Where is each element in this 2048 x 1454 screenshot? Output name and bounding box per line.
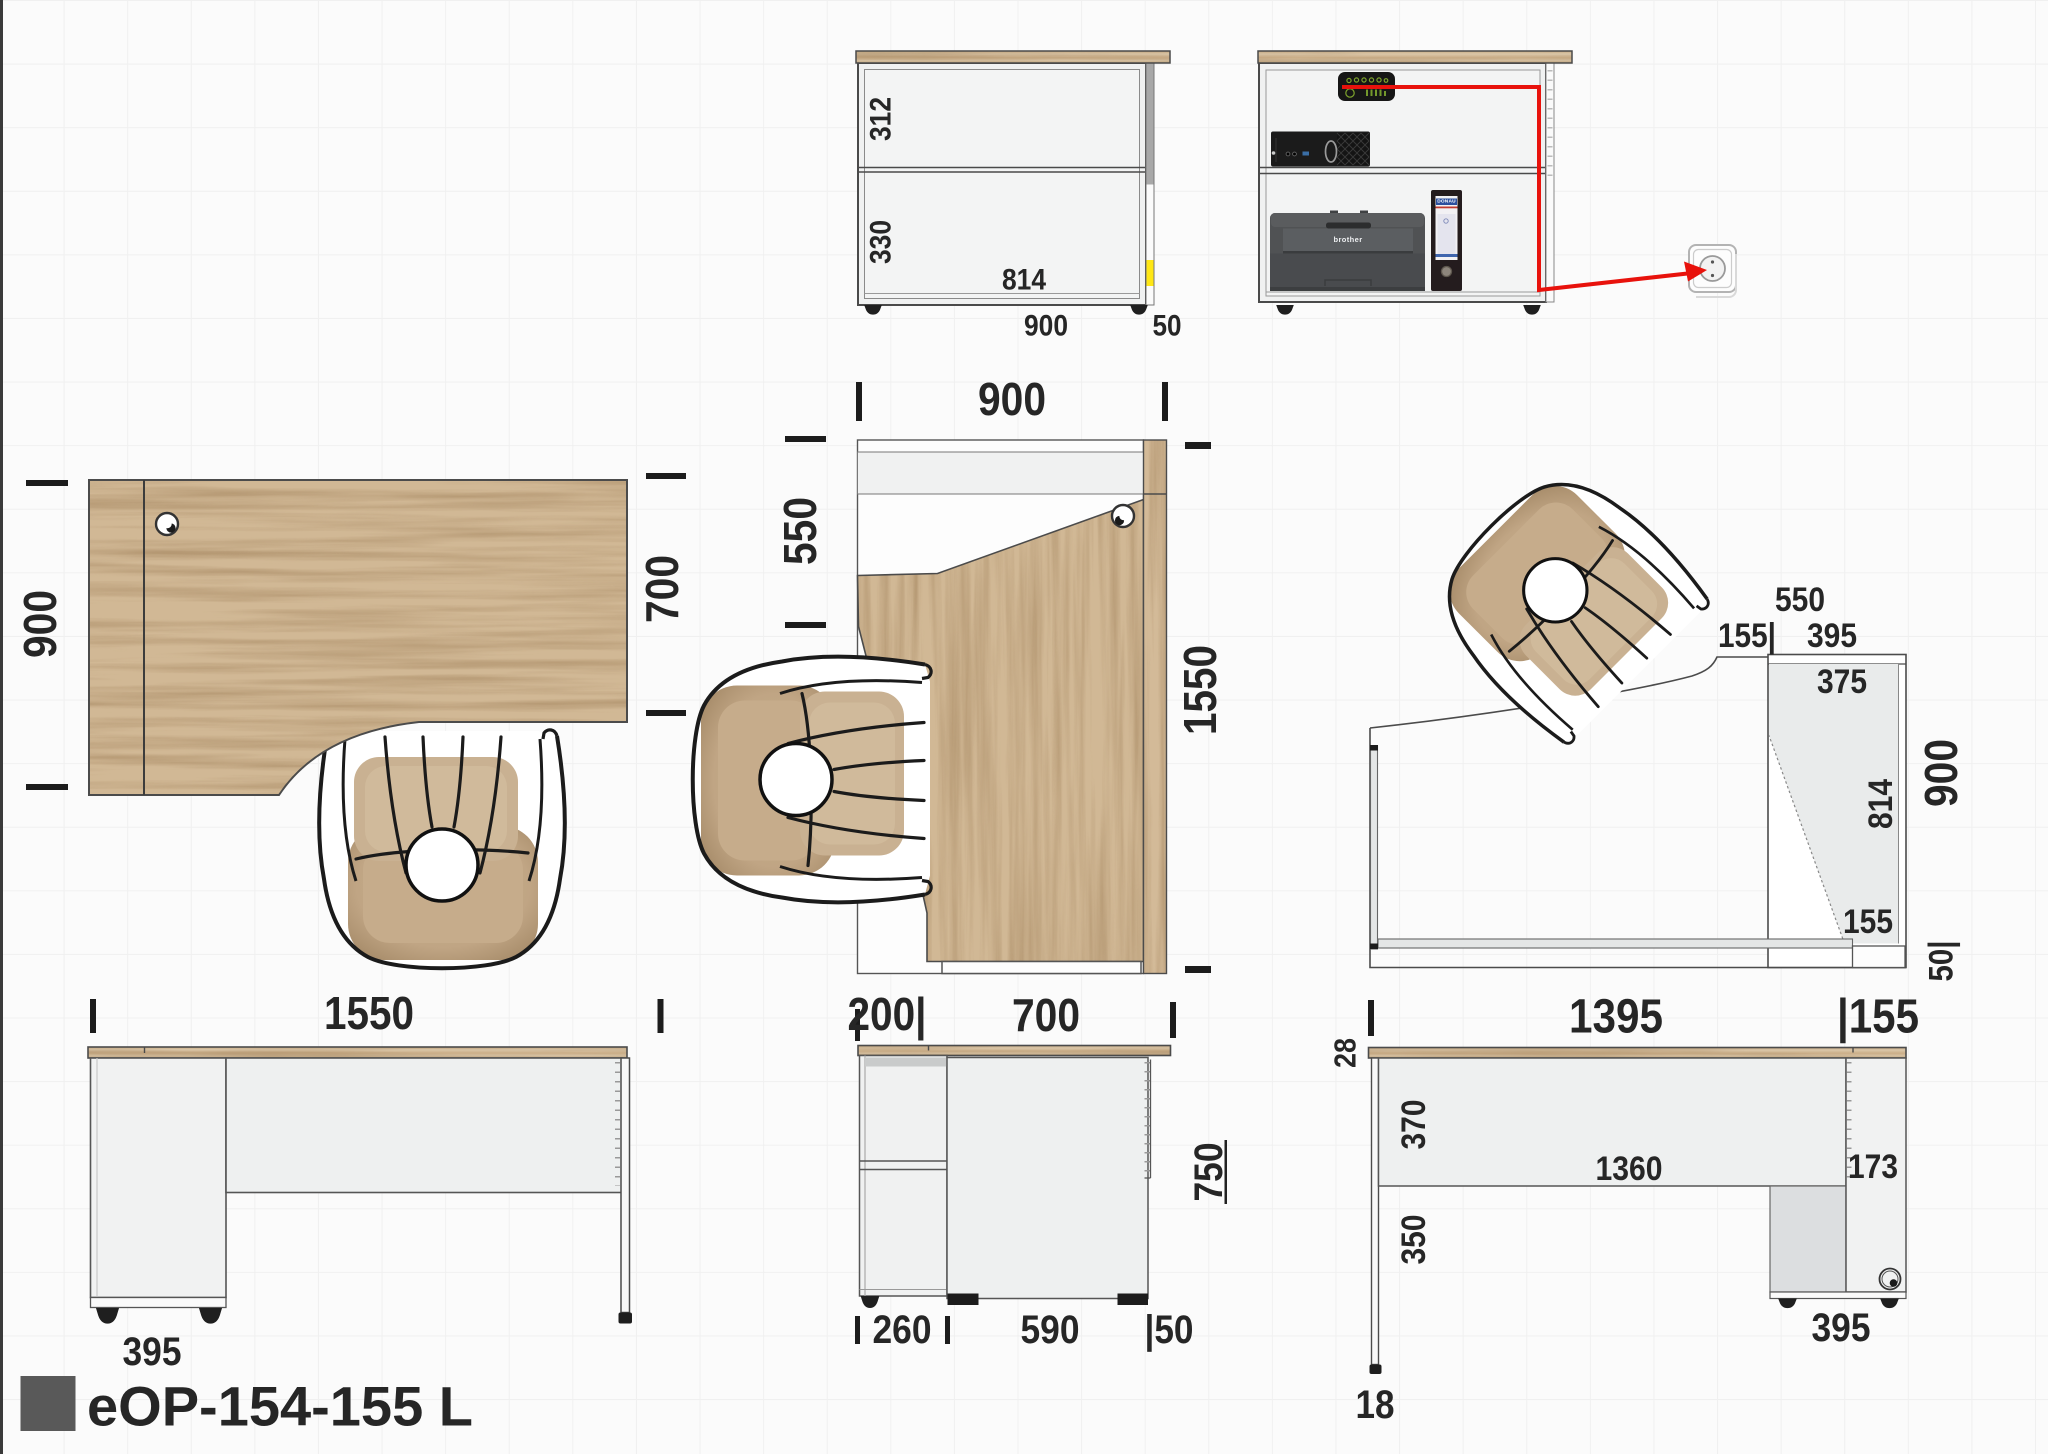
svg-text:28: 28 (1328, 1038, 1363, 1068)
svg-text:900: 900 (14, 590, 66, 658)
svg-text:330: 330 (865, 220, 898, 264)
svg-text:395: 395 (1812, 1306, 1871, 1350)
svg-text:395: 395 (1807, 617, 1857, 655)
svg-text:900: 900 (1915, 739, 1967, 807)
svg-text:155|: 155| (1718, 617, 1776, 655)
svg-text:750: 750 (1187, 1143, 1231, 1202)
svg-text:590: 590 (1021, 1308, 1080, 1352)
svg-text:18: 18 (1356, 1383, 1395, 1427)
svg-text:173: 173 (1848, 1148, 1898, 1186)
svg-text:50|: 50| (1923, 941, 1961, 982)
svg-text:700: 700 (1012, 989, 1080, 1041)
svg-text:1360: 1360 (1596, 1150, 1663, 1188)
svg-text:brother: brother (1333, 235, 1362, 244)
svg-text:312: 312 (865, 97, 898, 141)
svg-text:814: 814 (1862, 779, 1900, 829)
svg-text:155: 155 (1843, 903, 1893, 941)
svg-text:1550: 1550 (324, 987, 414, 1039)
svg-text:814: 814 (1002, 264, 1046, 297)
svg-text:375: 375 (1817, 663, 1867, 701)
svg-text:1395: 1395 (1569, 991, 1663, 1044)
svg-text:1550: 1550 (1174, 645, 1226, 735)
svg-text:395: 395 (123, 1330, 182, 1374)
svg-text:550: 550 (1775, 581, 1825, 619)
svg-text:260: 260 (873, 1308, 932, 1352)
svg-text:|155: |155 (1837, 991, 1919, 1044)
svg-text:370: 370 (1395, 1100, 1433, 1150)
svg-text:900: 900 (1024, 310, 1068, 343)
svg-text:700: 700 (636, 555, 688, 623)
svg-text:DONAU: DONAU (1437, 198, 1456, 204)
svg-text:|50: |50 (1145, 1308, 1194, 1352)
svg-text:550: 550 (774, 497, 826, 565)
svg-text:eOP-154-155 L: eOP-154-155 L (87, 1375, 473, 1438)
svg-text:50: 50 (1153, 310, 1182, 343)
svg-text:900: 900 (978, 373, 1046, 425)
svg-text:200|: 200| (848, 988, 927, 1040)
svg-text:350: 350 (1395, 1215, 1433, 1265)
